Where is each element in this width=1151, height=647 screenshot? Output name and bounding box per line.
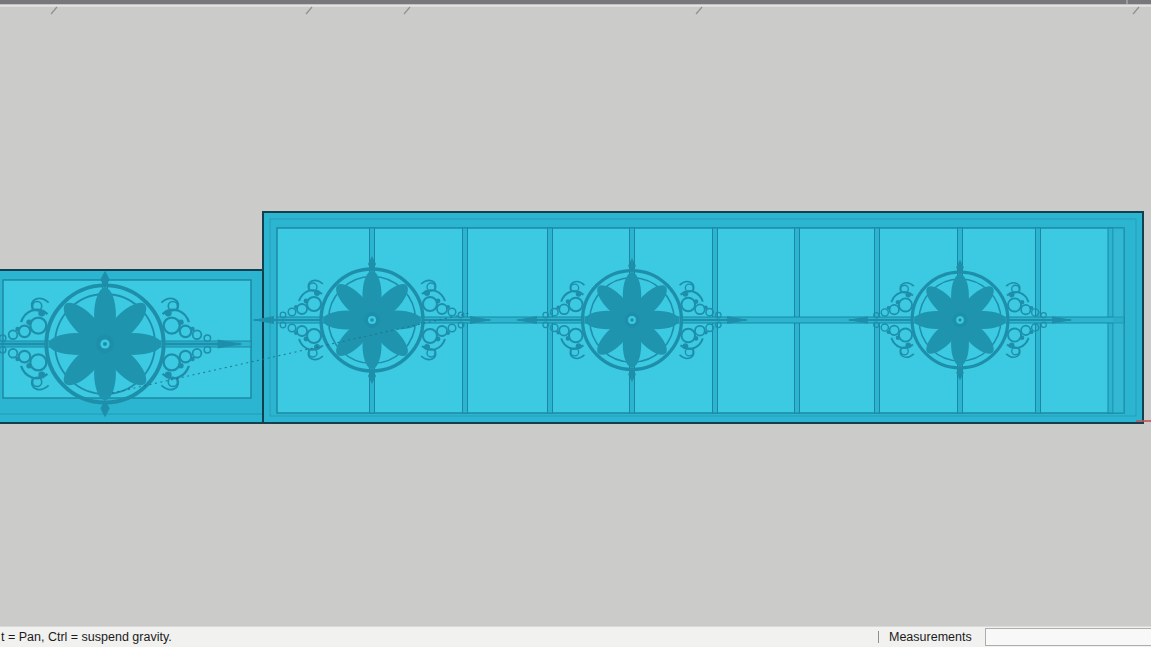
edge-tick-marks [51,7,1139,14]
measurements-separator [878,631,879,643]
measurements-label: Measurements [889,630,972,644]
viewport-canvas[interactable] [0,0,1151,626]
3d-viewport[interactable] [0,0,1151,626]
status-hint-text: t = Pan, Ctrl = suspend gravity. [1,630,172,644]
railing-segment-left[interactable] [0,270,263,423]
application-window: t = Pan, Ctrl = suspend gravity. Measure… [0,0,1151,647]
measurements-input[interactable] [985,628,1151,646]
railing-segment-main[interactable] [252,212,1143,423]
status-bar: t = Pan, Ctrl = suspend gravity. Measure… [0,626,1151,647]
background-edge-strip [0,0,1151,14]
